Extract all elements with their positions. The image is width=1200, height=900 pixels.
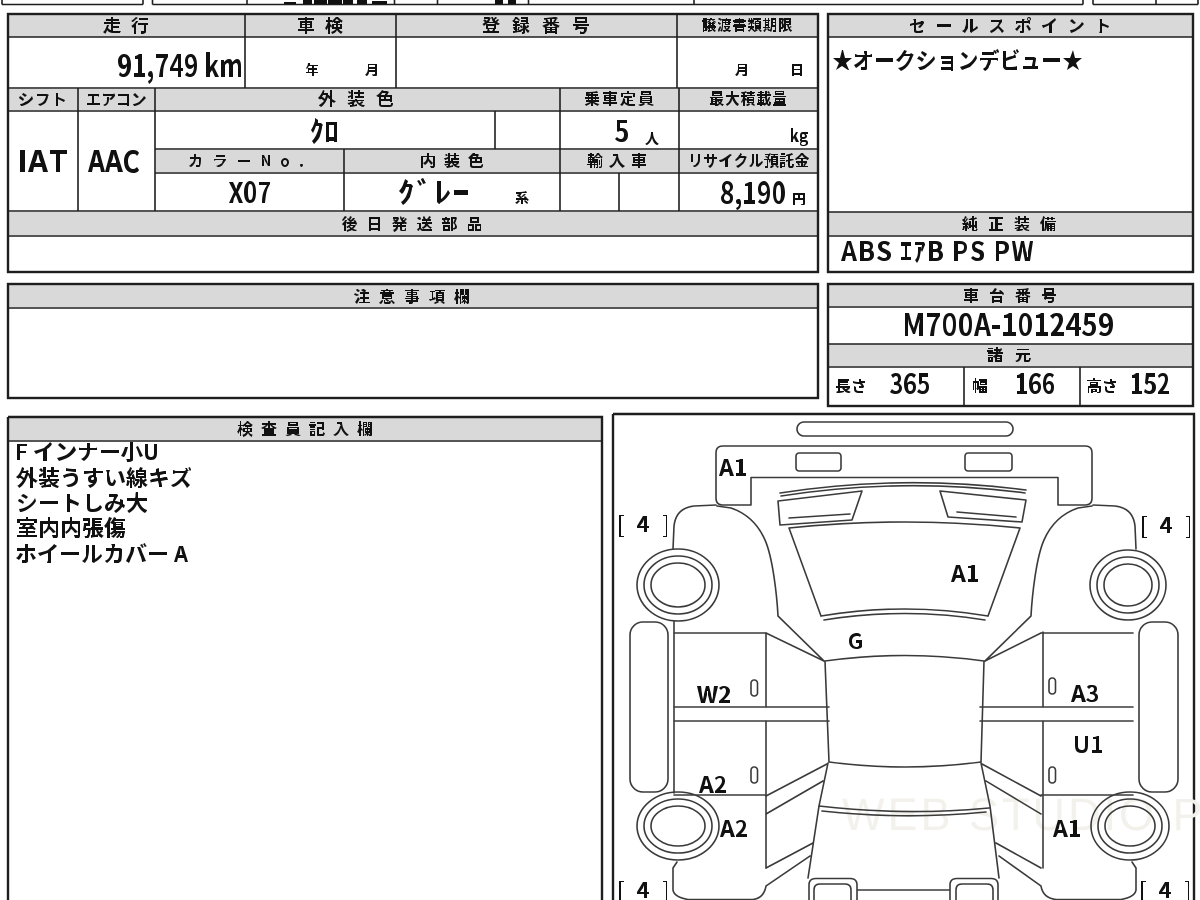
svg-text:WEB STUDIO PRO: WEB STUDIO PRO	[842, 789, 1200, 840]
